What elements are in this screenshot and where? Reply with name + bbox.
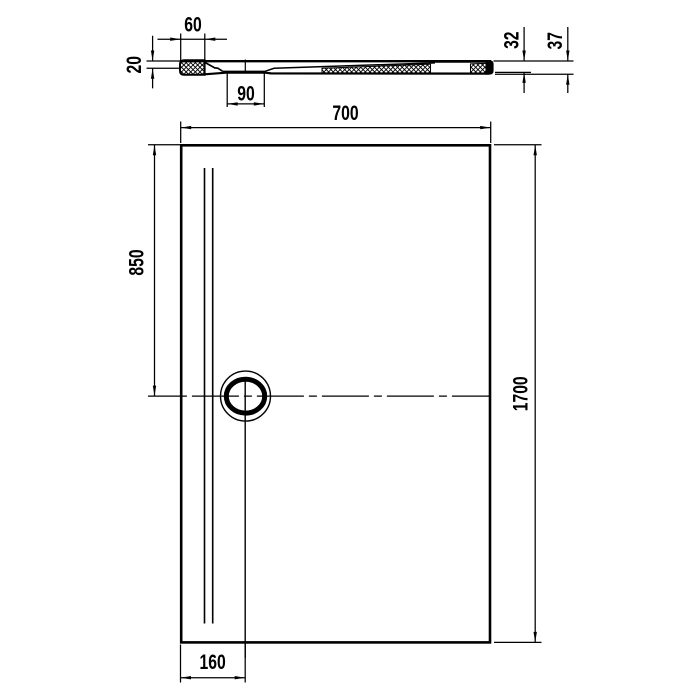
svg-text:90: 90: [237, 81, 254, 105]
svg-text:160: 160: [200, 650, 226, 674]
svg-text:20: 20: [122, 56, 146, 73]
svg-text:60: 60: [184, 12, 201, 36]
svg-text:850: 850: [124, 249, 148, 275]
svg-text:37: 37: [543, 32, 567, 49]
svg-text:32: 32: [499, 31, 523, 48]
svg-text:700: 700: [332, 101, 358, 125]
svg-text:1700: 1700: [508, 376, 532, 411]
